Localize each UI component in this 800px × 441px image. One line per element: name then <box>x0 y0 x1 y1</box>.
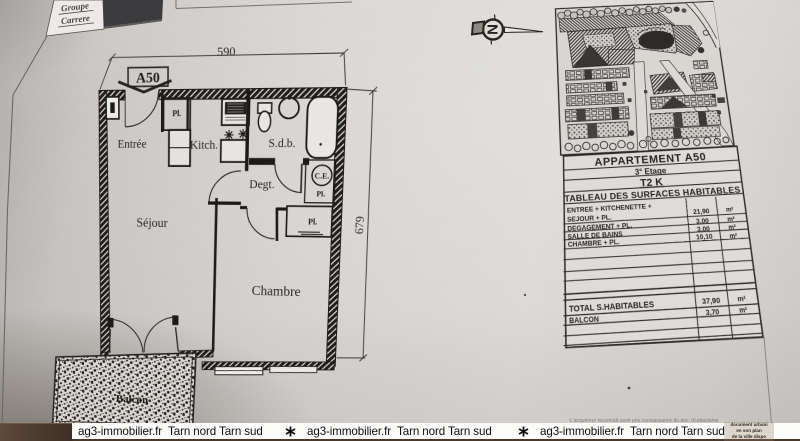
svg-text:A50: A50 <box>136 70 160 87</box>
svg-text:Balcon: Balcon <box>116 392 148 406</box>
svg-text:37,90: 37,90 <box>702 298 722 307</box>
svg-text:Kitch.: Kitch. <box>190 138 218 152</box>
svg-text:Degt.: Degt. <box>249 178 275 192</box>
svg-text:3,00: 3,00 <box>696 218 710 226</box>
svg-text:679: 679 <box>353 216 367 234</box>
svg-text:m²: m² <box>726 207 735 215</box>
svg-text:m²: m² <box>737 294 747 304</box>
svg-text:Séjour: Séjour <box>136 216 168 230</box>
svg-text:590: 590 <box>217 44 236 60</box>
svg-text:Pl.: Pl. <box>308 217 318 226</box>
svg-text:C.E.: C.E. <box>314 171 329 180</box>
svg-text:Chambre: Chambre <box>252 283 301 299</box>
svg-text:S.d.b.: S.d.b. <box>268 137 296 151</box>
svg-text:Pl.: Pl. <box>172 109 181 118</box>
svg-text:Entrée: Entrée <box>117 137 146 150</box>
svg-text:Pl.: Pl. <box>316 189 325 198</box>
